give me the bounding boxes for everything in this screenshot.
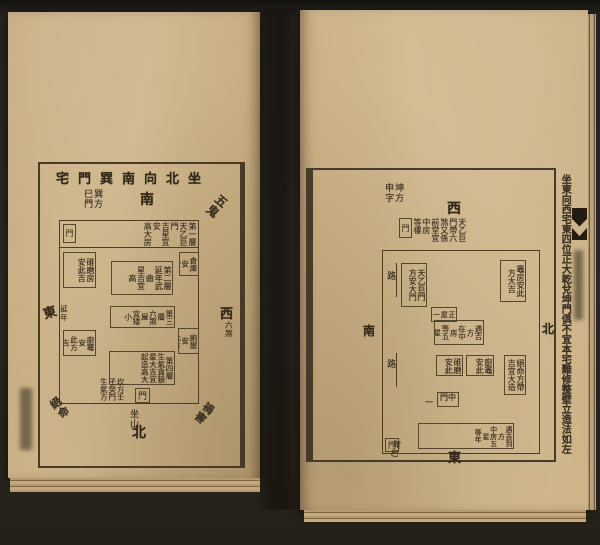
east-star-note: 延年 bbox=[59, 305, 67, 323]
west-label: 西 bbox=[220, 303, 233, 322]
inner-gate-room-box: 天乙巨門 方安大門 bbox=[401, 263, 427, 307]
side-room-right-lower: 廁屋安 此方 bbox=[178, 328, 199, 354]
left-house-outline: 門 第一層 天乙巨門 吉星宜安 高大房 第二層 延年武曲 星吉宜高 第三層 六煞… bbox=[59, 220, 199, 404]
storehouse-box: 絕命方帶 吉宜大造 bbox=[504, 355, 526, 395]
center-advice-box: 遇吉方 在中房 等五星 年 bbox=[434, 320, 484, 345]
fishtail-mark bbox=[572, 208, 587, 240]
north-label: 北 bbox=[542, 320, 554, 337]
south-label: 南 bbox=[363, 322, 375, 339]
side-room-right-upper: 倉庫安 此方 bbox=[179, 252, 199, 276]
rear-gate-box: 門 bbox=[135, 388, 150, 403]
page-edge-smudge bbox=[574, 250, 583, 320]
kitchen-room-box: 竈房安此 方大吉 bbox=[500, 260, 526, 302]
main-gate-box: 門 bbox=[399, 218, 412, 238]
right-page-leaf-edges-bottom bbox=[304, 510, 586, 522]
left-page-leaf-edges bbox=[10, 478, 260, 492]
page-edge-smudge bbox=[20, 388, 32, 450]
bottom-advice-box: 遇吉到方 中房五星 等年 bbox=[418, 423, 514, 449]
side-room-left-upper: 碓磨房 安此吉 bbox=[63, 252, 96, 288]
dash-mark: 一 bbox=[425, 397, 433, 408]
side-room-left-lower: 廚竈安 此方吉 bbox=[63, 330, 96, 356]
middle-gate-box: 門中 bbox=[437, 392, 459, 407]
road-label-lower: 路 bbox=[385, 359, 395, 373]
right-house-outline: 路 路 天乙巨門 方安大門 竈房安此 方大吉 正屋 一間 遇吉方 在中房 等五星… bbox=[382, 250, 540, 454]
road-line-lower bbox=[396, 353, 397, 387]
right-diagram-frame: 西 坤方 申字 門 天乙巨 門帶六 煞又係 前堂宜 中房 等樓 路 路 天乙巨門… bbox=[306, 168, 556, 462]
stove-room-box: 廚竈 安此 bbox=[466, 355, 494, 376]
gate-direction-label: 坤方 申字 bbox=[383, 183, 403, 221]
first-row-text: 第一層 天乙巨門 吉星宜安 高大房 bbox=[142, 222, 196, 246]
left-page-title: 宅門巽南向北坐 bbox=[56, 168, 232, 187]
left-diagram-frame: 宅門巽南向北坐 南 巽方 巳門 五鬼 門 第一層 天乙巨門 吉星宜安 高大房 第… bbox=[38, 162, 245, 468]
book-scan: 宅門巽南向北坐 南 巽方 巳門 五鬼 門 第一層 天乙巨門 吉星宜安 高大房 第… bbox=[0, 0, 600, 545]
corner-star-southwest: 五鬼 bbox=[200, 191, 230, 223]
margin-commentary: 坐東向西宅東四位正大乾兌坤門俱不宜本宅難修整壁立造法如左 bbox=[559, 174, 570, 466]
right-page-leaf-edges-side bbox=[588, 14, 596, 510]
south-label: 南 bbox=[140, 189, 154, 209]
east-label: 東 bbox=[40, 300, 58, 322]
right-page: 西 坤方 申字 門 天乙巨 門帶六 煞又係 前堂宜 中房 等樓 路 路 天乙巨門… bbox=[300, 10, 588, 510]
left-page: 宅門巽南向北坐 南 巽方 巳門 五鬼 門 第一層 天乙巨門 吉星宜安 高大房 第… bbox=[8, 12, 260, 478]
road-line-upper bbox=[396, 263, 397, 297]
north-label: 北 bbox=[132, 422, 146, 442]
main-gate-box: 門 bbox=[63, 224, 76, 243]
rear-gate-note: 坎方壬 子癸門 生氣方 bbox=[99, 378, 124, 408]
room-box-third-layer: 第三層 六煞屋 宜矮小 bbox=[110, 306, 175, 328]
west-star-note: 六煞 bbox=[224, 321, 232, 339]
road-label-upper: 路 bbox=[385, 271, 395, 285]
room-box-second-layer: 第二層 延年武曲 星吉宜高 bbox=[111, 261, 173, 295]
page-gap-shadow bbox=[256, 8, 304, 510]
first-row-bar: 門 第一層 天乙巨門 吉星宜安 高大房 bbox=[60, 221, 198, 248]
mill-room-box: 碓磨 安此 bbox=[436, 355, 463, 376]
east-label: 東 bbox=[448, 447, 461, 466]
west-label: 西 bbox=[447, 198, 461, 218]
